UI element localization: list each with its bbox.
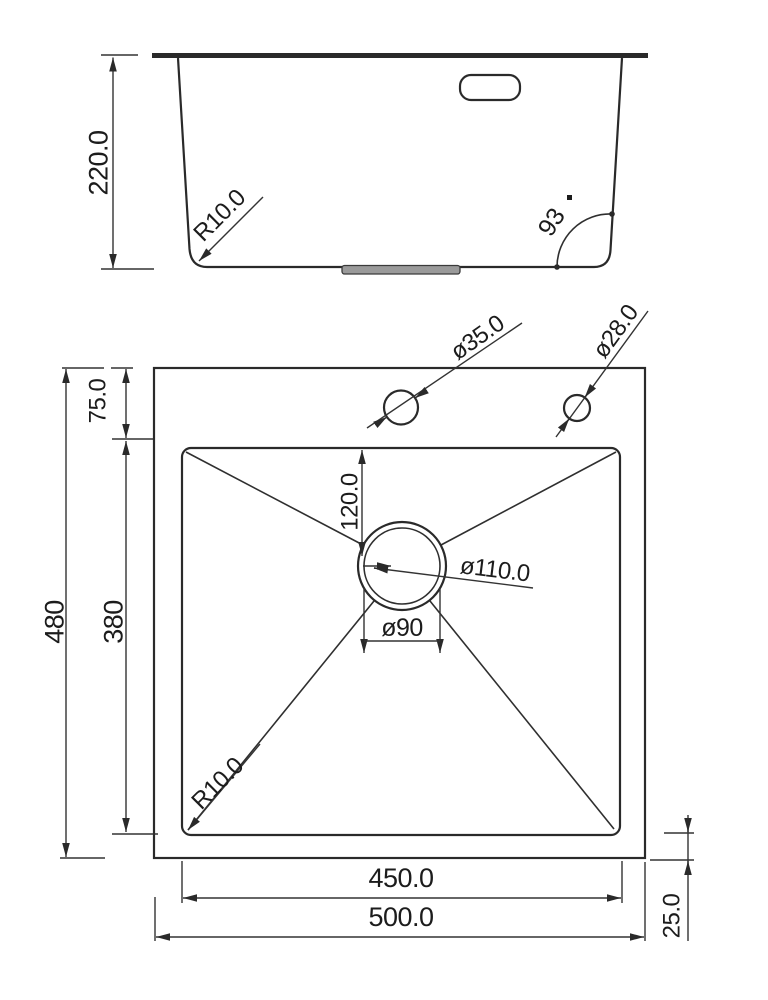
- radius-label: R10.0: [188, 184, 251, 247]
- bowl-radius-label: R10.0: [186, 752, 249, 815]
- faucet-hole: [384, 391, 418, 425]
- drain-outer-diameter-label: ø110.0: [459, 552, 532, 587]
- overflow-hole: [460, 75, 520, 100]
- rim-top-label: 75.0: [84, 378, 111, 423]
- bowl-diagonal: [430, 601, 614, 829]
- bowl-diagonal: [441, 452, 616, 545]
- overall-width-label: 500.0: [368, 902, 433, 932]
- leader-arrow: [374, 568, 388, 570]
- bowl-width-label: 450.0: [368, 863, 433, 893]
- plan-view: ø35.0 ø28.0 480 75.0 380 120.0 ø110.0 ø9: [39, 300, 694, 941]
- arc-endpoint-dot: [609, 211, 615, 217]
- drain-strip: [342, 266, 460, 275]
- overall-length-label: 480: [39, 600, 69, 644]
- faucet-hole-label: ø35.0: [446, 310, 510, 366]
- leader-arrow: [561, 419, 569, 430]
- degree-mark-icon: [567, 195, 572, 200]
- bowl-length-label: 380: [98, 600, 128, 644]
- accessory-hole-label: ø28.0: [588, 300, 645, 364]
- depth-dimension-label: 220.0: [83, 130, 113, 195]
- leader-arrow: [585, 386, 593, 397]
- sink-technical-drawing-page: 220.0 R10.0 93 ø35.0: [0, 0, 768, 1000]
- elevation-view: 220.0 R10.0 93: [83, 55, 648, 274]
- sink-technical-drawing: 220.0 R10.0 93 ø35.0: [0, 0, 768, 1000]
- drain-offset-label: 120.0: [336, 473, 363, 531]
- angle-label: 93: [533, 204, 571, 242]
- drain-diameter-label: ø90: [381, 614, 423, 642]
- rim-bottom-label: 25.0: [658, 893, 685, 938]
- arc-endpoint-dot: [554, 264, 560, 270]
